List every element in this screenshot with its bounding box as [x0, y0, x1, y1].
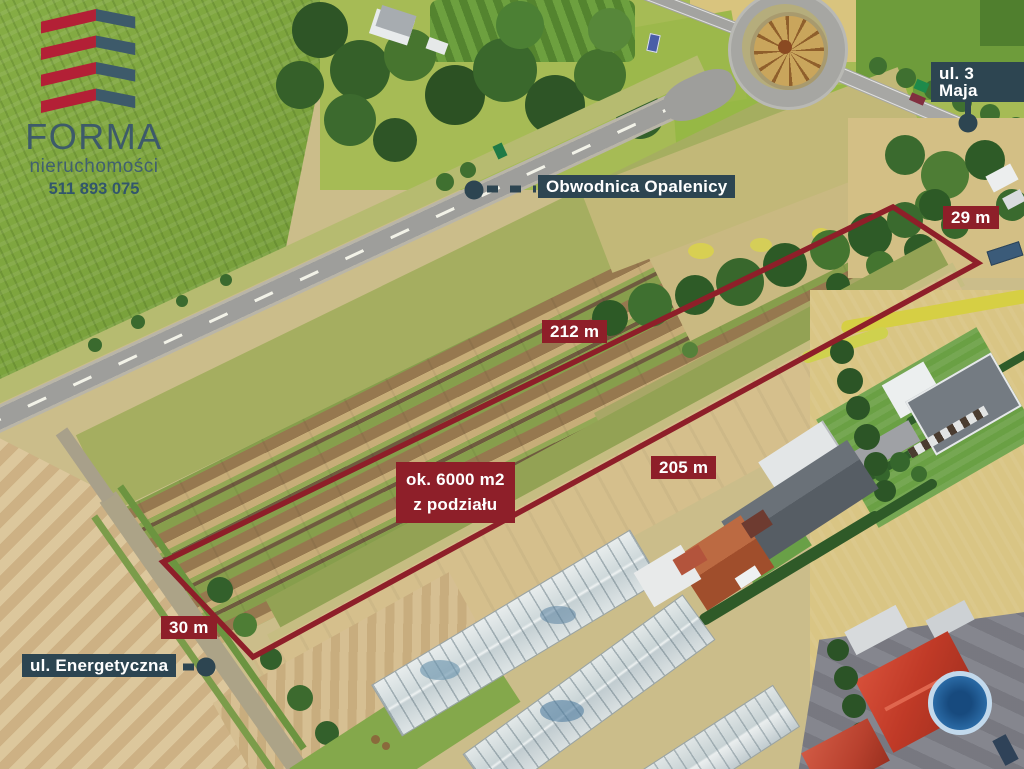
brand-logo: FORMA nieruchomości 511 893 075	[16, 6, 172, 199]
measure-label-205m: 205 m	[651, 456, 716, 479]
measure-label-29m: 29 m	[943, 206, 999, 229]
location-dot-icon	[465, 181, 484, 200]
aerial-photo: ul. 3 Maja Obwodnica Opalenicy ul. Energ…	[0, 0, 1024, 769]
street-label-ul-energetyczna: ul. Energetyczna	[22, 654, 176, 677]
location-dot-icon	[959, 114, 978, 133]
street-label-obwodnica-opalenicy: Obwodnica Opalenicy	[538, 175, 735, 198]
brand-subtitle: nieruchomości	[16, 156, 172, 178]
area-label: ok. 6000 m2 z podziału	[396, 462, 515, 523]
brand-phone: 511 893 075	[16, 180, 172, 199]
street-label-ul-3-maja: ul. 3 Maja	[931, 62, 1024, 102]
measure-label-30m: 30 m	[161, 616, 217, 639]
location-dot-icon	[197, 658, 216, 677]
building-slabs-icon	[35, 6, 153, 114]
maja-label-stem	[965, 102, 971, 115]
brand-name: FORMA	[16, 116, 172, 158]
measure-label-212m: 212 m	[542, 320, 607, 343]
parcel-outline	[163, 207, 978, 657]
area-label-line2: z podziału	[413, 493, 497, 518]
area-label-line1: ok. 6000 m2	[406, 468, 505, 493]
